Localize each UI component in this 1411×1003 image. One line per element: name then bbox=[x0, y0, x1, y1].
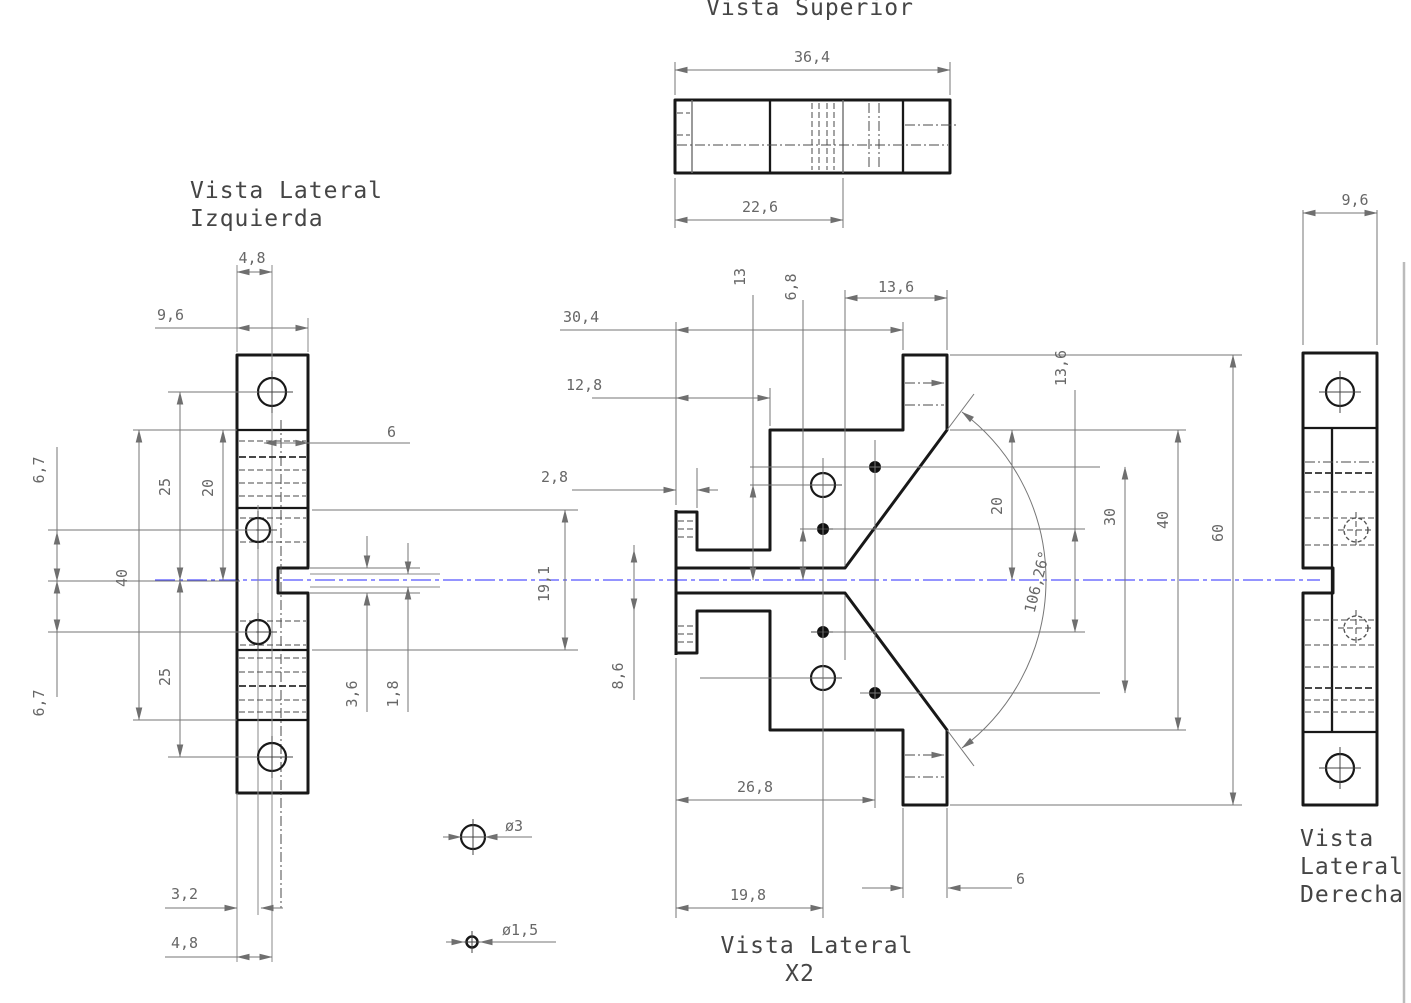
dim-center-body-height: 40 bbox=[1154, 511, 1172, 529]
dim-left-tab-width: 4,8 bbox=[238, 249, 265, 267]
right-view-outline bbox=[1303, 353, 1377, 805]
dim-center-width-hole-far: 26,8 bbox=[737, 778, 773, 796]
dim-left-inner-span: 20 bbox=[199, 479, 217, 497]
center-view: Vista Lateral X2 bbox=[541, 268, 1242, 987]
dim-top-width: 36,4 bbox=[794, 48, 830, 66]
dim-left-inner-height: 19,1 bbox=[535, 566, 553, 602]
dim-center-width-step: 12,8 bbox=[566, 376, 602, 394]
technical-drawing-page: Vista Superior 36,4 22,6 bbox=[0, 0, 1411, 1003]
dim-center-angle: 106,26° bbox=[1021, 549, 1054, 615]
center-view-title-line1: Vista Lateral bbox=[720, 933, 913, 959]
small-hole-callout: ø1,5 bbox=[446, 921, 556, 953]
dim-left-hole-center-bottom: 6,7 bbox=[30, 689, 48, 716]
dim-left-outer-hole-top: 25 bbox=[156, 478, 174, 496]
hole-callouts: ø3 ø1,5 bbox=[443, 817, 556, 953]
dim-center-mouth-height: 8,6 bbox=[609, 662, 627, 689]
dim-left-slot-inner: 1,8 bbox=[384, 680, 402, 707]
right-view-title-line3: Derecha bbox=[1300, 882, 1404, 908]
dim-left-slot-outer: 3,6 bbox=[343, 680, 361, 707]
dim-left-outer-hole-bottom: 25 bbox=[156, 668, 174, 686]
top-view-hidden-lines bbox=[677, 103, 957, 170]
dim-center-tab-depth: 2,8 bbox=[541, 468, 568, 486]
dim-center-width-hole-near: 19,8 bbox=[730, 886, 766, 904]
center-view-dimensions: 30,4 12,8 2,8 13 6,8 13,6 8,6 bbox=[541, 268, 1233, 908]
dim-left-hole-center-top: 6,7 bbox=[30, 456, 48, 483]
left-side-view: Vista Lateral Izquierda bbox=[30, 178, 578, 962]
dim-left-base-b: 4,8 bbox=[171, 934, 198, 952]
dim-center-hole-center-b: 6,8 bbox=[782, 273, 800, 300]
dim-center-tab-width: 6 bbox=[1016, 870, 1025, 888]
left-view-centerlines bbox=[237, 265, 308, 962]
dim-left-width: 9,6 bbox=[157, 306, 184, 324]
right-view-title-line1: Vista bbox=[1300, 826, 1374, 852]
top-view-title: Vista Superior bbox=[706, 0, 914, 21]
top-view: Vista Superior 36,4 22,6 bbox=[675, 0, 957, 228]
center-view-title-line2: X2 bbox=[785, 961, 815, 987]
dim-top-inner-width: 22,6 bbox=[742, 198, 778, 216]
dim-center-flare-width: 13,6 bbox=[878, 278, 914, 296]
right-view-holes bbox=[1319, 371, 1374, 789]
callout-large-hole-label: ø3 bbox=[505, 817, 523, 835]
callout-small-hole-label: ø1,5 bbox=[502, 921, 538, 939]
dim-left-hole-offset: 6 bbox=[387, 423, 396, 441]
dim-left-base-a: 3,2 bbox=[171, 885, 198, 903]
dim-center-hole-span-outer: 30 bbox=[1101, 508, 1119, 526]
dim-center-hole-center-a: 13 bbox=[731, 268, 749, 286]
top-view-dimensions: 36,4 22,6 bbox=[675, 48, 950, 228]
left-view-title-line2: Izquierda bbox=[190, 206, 324, 232]
right-side-view: Vista Lateral Derecha bbox=[1300, 191, 1404, 908]
large-hole-callout: ø3 bbox=[443, 817, 532, 855]
right-view-hidden-lines bbox=[1305, 462, 1375, 712]
right-view-title-line2: Lateral bbox=[1300, 854, 1404, 880]
dim-center-half-height: 20 bbox=[988, 497, 1006, 515]
dim-center-total-height: 60 bbox=[1209, 524, 1227, 542]
left-view-title-line1: Vista Lateral bbox=[190, 178, 383, 204]
left-view-holes bbox=[239, 371, 293, 778]
dim-center-width-outer: 30,4 bbox=[563, 308, 599, 326]
dim-center-hole-span: 13,6 bbox=[1052, 350, 1070, 386]
drawing-canvas: Vista Superior 36,4 22,6 bbox=[0, 0, 1411, 1003]
dim-left-body-height: 40 bbox=[113, 569, 131, 587]
center-view-extension-lines bbox=[676, 290, 1242, 918]
dim-right-width: 9,6 bbox=[1341, 191, 1368, 209]
right-view-dimensions: 9,6 bbox=[1303, 191, 1377, 345]
